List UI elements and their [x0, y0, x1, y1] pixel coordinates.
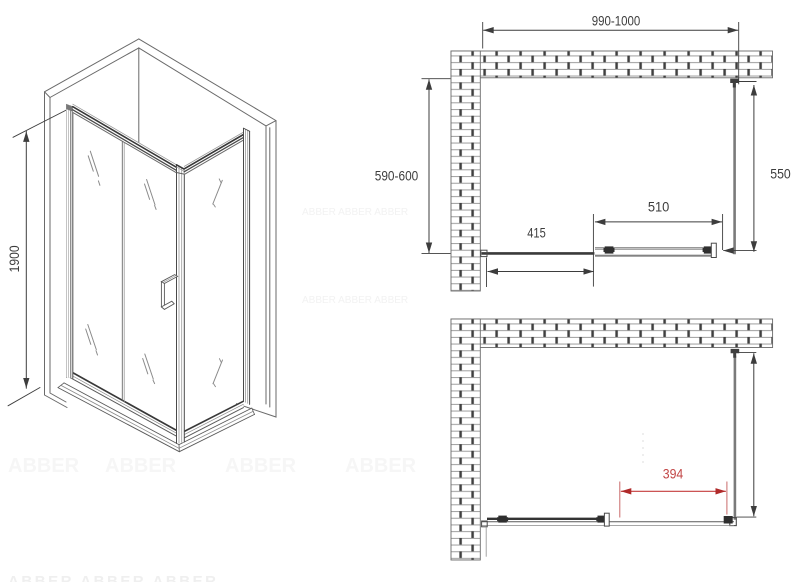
svg-text:510: 510 [648, 199, 670, 214]
svg-text:ABBER: ABBER [345, 455, 417, 477]
svg-text:394: 394 [663, 467, 684, 482]
svg-text:ABBER: ABBER [105, 455, 177, 477]
svg-text:550: 550 [770, 167, 791, 182]
svg-text:ABBER ABBER ABBER: ABBER ABBER ABBER [8, 573, 216, 582]
svg-text:415: 415 [527, 226, 546, 241]
svg-text:990-1000: 990-1000 [592, 13, 641, 28]
svg-text:1900: 1900 [7, 245, 22, 272]
svg-text:ABBER ABBER ABBER: ABBER ABBER ABBER [302, 295, 408, 306]
svg-text:ABBER: ABBER [8, 455, 80, 477]
svg-text:ABBER ABBER ABBER: ABBER ABBER ABBER [302, 207, 408, 218]
svg-text:590-600: 590-600 [375, 168, 419, 183]
svg-text:ABBER: ABBER [225, 455, 297, 477]
